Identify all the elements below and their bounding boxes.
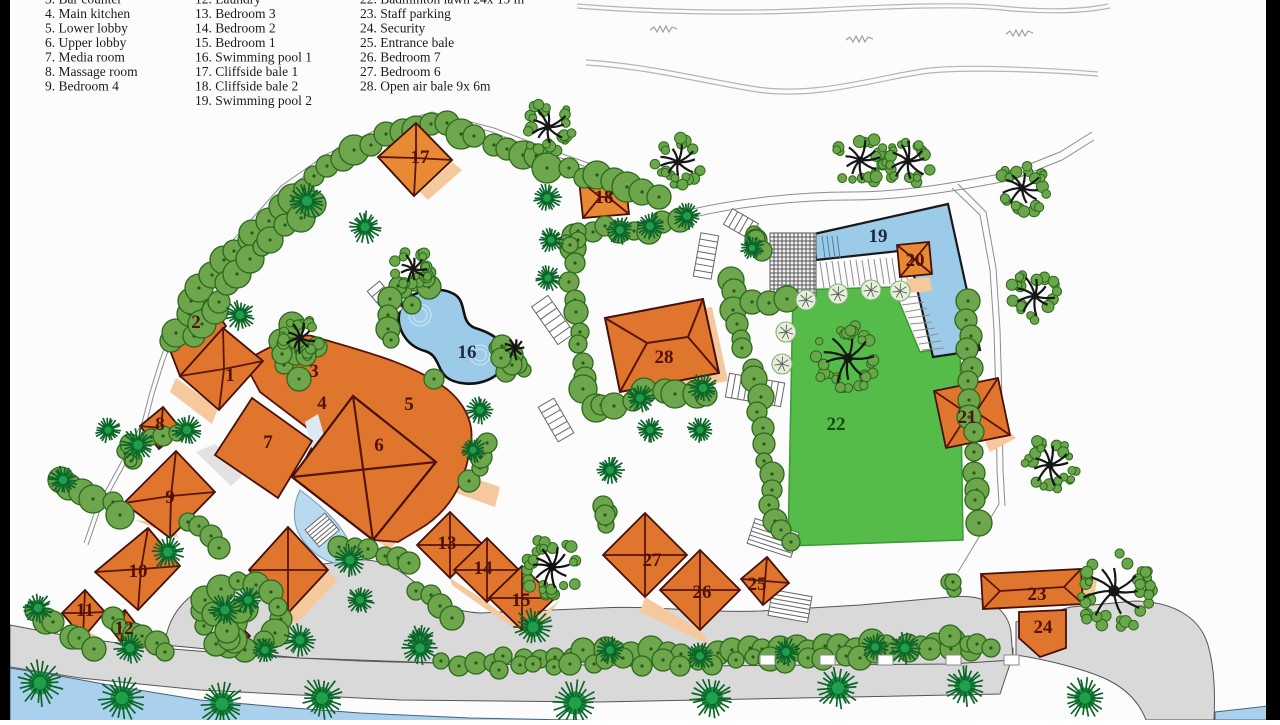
svg-text:9: 9 — [165, 487, 175, 508]
svg-text:24. Security: 24. Security — [360, 21, 425, 36]
svg-text:5. Lower lobby: 5. Lower lobby — [45, 21, 128, 36]
svg-text:17. Cliffside bale 1: 17. Cliffside bale 1 — [195, 64, 298, 79]
svg-text:4: 4 — [317, 393, 327, 414]
svg-text:6: 6 — [374, 435, 384, 456]
svg-text:25: 25 — [748, 574, 767, 595]
svg-text:24: 24 — [1034, 617, 1054, 638]
svg-text:15: 15 — [512, 590, 531, 611]
svg-text:23. Staff parking: 23. Staff parking — [360, 6, 451, 21]
svg-text:15. Bedroom 1: 15. Bedroom 1 — [195, 35, 276, 50]
svg-text:10: 10 — [129, 561, 148, 582]
svg-text:18. Cliffside bale 2: 18. Cliffside bale 2 — [195, 79, 298, 94]
svg-text:18: 18 — [595, 187, 614, 208]
svg-text:17: 17 — [411, 147, 431, 168]
svg-text:11: 11 — [76, 600, 94, 621]
svg-text:16. Swimming pool 1: 16. Swimming pool 1 — [195, 50, 312, 65]
svg-text:4. Main kitchen: 4. Main kitchen — [45, 6, 130, 21]
svg-text:9. Bedroom 4: 9. Bedroom 4 — [45, 79, 119, 94]
svg-text:7: 7 — [263, 432, 273, 453]
svg-text:8. Massage room: 8. Massage room — [45, 64, 138, 79]
svg-text:21: 21 — [958, 407, 977, 428]
svg-text:16: 16 — [458, 342, 477, 363]
svg-text:28. Open air bale 9x 6m: 28. Open air bale 9x 6m — [360, 79, 491, 94]
svg-text:26. Bedroom 7: 26. Bedroom 7 — [360, 50, 441, 65]
svg-text:22: 22 — [827, 414, 846, 435]
svg-text:14: 14 — [474, 558, 494, 579]
svg-text:26: 26 — [693, 582, 712, 603]
svg-text:13. Bedroom 3: 13. Bedroom 3 — [195, 6, 276, 21]
svg-text:3: 3 — [309, 361, 319, 382]
svg-text:7. Media room: 7. Media room — [45, 50, 125, 65]
svg-text:20: 20 — [906, 250, 925, 271]
svg-text:27. Bedroom 6: 27. Bedroom 6 — [360, 64, 441, 79]
svg-text:6. Upper lobby: 6. Upper lobby — [45, 35, 127, 50]
svg-text:5: 5 — [404, 394, 414, 415]
svg-text:19: 19 — [869, 226, 888, 247]
svg-text:28: 28 — [655, 347, 674, 368]
svg-text:27: 27 — [643, 550, 663, 571]
svg-text:14. Bedroom 2: 14. Bedroom 2 — [195, 21, 276, 36]
svg-text:1: 1 — [225, 365, 235, 386]
svg-text:23: 23 — [1028, 584, 1047, 605]
svg-text:8: 8 — [155, 414, 165, 435]
svg-text:13: 13 — [438, 533, 457, 554]
svg-text:12: 12 — [115, 618, 134, 639]
svg-text:2: 2 — [191, 312, 201, 333]
svg-text:25. Entrance bale: 25. Entrance bale — [360, 35, 454, 50]
svg-text:19. Swimming pool 2: 19. Swimming pool 2 — [195, 93, 312, 108]
